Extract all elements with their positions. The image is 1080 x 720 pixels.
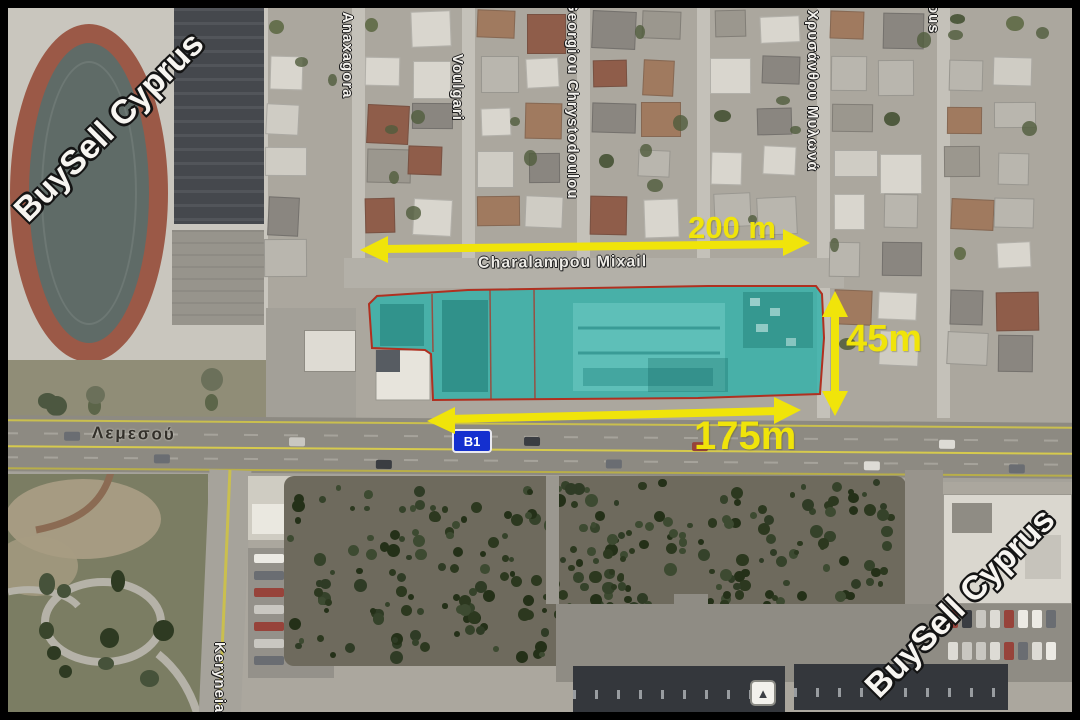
tree <box>614 500 619 505</box>
tree <box>415 500 425 510</box>
tree <box>790 126 801 135</box>
tree <box>295 643 301 649</box>
car <box>154 454 170 463</box>
tree <box>289 618 301 630</box>
road-line <box>8 445 1072 454</box>
tree <box>292 500 305 513</box>
tree <box>516 651 528 663</box>
side-road <box>905 470 943 604</box>
parking-car <box>254 588 284 597</box>
tree <box>461 516 468 523</box>
house <box>643 198 679 238</box>
tree <box>527 489 533 495</box>
car <box>376 460 392 469</box>
parking-car <box>254 622 284 631</box>
tree <box>502 555 509 562</box>
b1-road-sign: B1 <box>452 429 492 453</box>
house <box>834 194 865 230</box>
house <box>832 104 874 132</box>
house <box>762 56 801 86</box>
tree <box>864 504 876 516</box>
tree <box>664 563 677 576</box>
street-label-anaxagora: Anaxagora <box>339 12 356 99</box>
tree <box>776 96 790 106</box>
house <box>711 152 743 186</box>
tree <box>617 574 624 581</box>
tree <box>585 494 598 507</box>
tree <box>510 117 519 126</box>
tree <box>673 115 689 131</box>
public-park <box>8 474 208 712</box>
tree <box>603 549 613 559</box>
car <box>64 432 80 441</box>
house <box>591 11 636 51</box>
dimension-label-bottom: 175m <box>694 416 796 456</box>
tree <box>570 546 577 553</box>
tree <box>140 670 159 686</box>
tree <box>356 568 363 575</box>
house <box>481 107 512 136</box>
tree <box>849 506 858 515</box>
street-label-keryneias: Keryneias <box>211 642 228 712</box>
parking-car <box>254 656 284 665</box>
tree <box>524 150 537 165</box>
house <box>882 242 923 277</box>
tree <box>658 479 667 488</box>
car <box>606 459 622 468</box>
tree <box>408 594 414 600</box>
tree <box>595 511 605 521</box>
car <box>1009 464 1025 473</box>
tree <box>954 247 966 261</box>
tree <box>571 501 579 509</box>
tree <box>669 529 678 538</box>
tree <box>417 608 424 615</box>
house <box>715 10 747 38</box>
satellite-map: ▲ Anaxagora Voulgari Georgiou Chry <box>8 8 1072 712</box>
tree <box>469 588 477 596</box>
parking-car <box>254 639 284 648</box>
house <box>949 60 984 92</box>
house <box>762 145 797 175</box>
house <box>994 198 1035 230</box>
tree <box>568 565 574 571</box>
tree <box>438 563 446 571</box>
tree <box>390 651 403 664</box>
tree <box>430 505 436 511</box>
parking-car <box>1046 610 1056 628</box>
tree <box>336 485 342 491</box>
tree <box>818 538 829 549</box>
tree <box>639 540 648 549</box>
tree <box>579 524 587 532</box>
tree <box>839 556 850 567</box>
car <box>289 437 305 446</box>
house <box>944 146 981 177</box>
house <box>949 290 983 326</box>
tree <box>387 544 400 557</box>
tree <box>450 564 459 573</box>
house <box>998 335 1033 372</box>
tree <box>679 538 687 546</box>
tree <box>511 514 523 526</box>
house <box>524 196 563 230</box>
tree <box>618 532 625 539</box>
street-label-lemesou: Λεμεσού <box>92 423 176 445</box>
parking-car <box>990 610 1000 628</box>
tree <box>317 635 324 642</box>
house <box>877 291 917 321</box>
photo-frame: ▲ Anaxagora Voulgari Georgiou Chry <box>0 0 1080 720</box>
tree <box>881 526 893 538</box>
tree <box>645 522 654 531</box>
tree <box>399 536 405 542</box>
marker-triangle-icon: ▲ <box>757 686 770 701</box>
house <box>759 15 800 44</box>
tree <box>832 482 842 492</box>
tree <box>397 573 406 582</box>
tree <box>454 631 460 637</box>
house <box>477 150 515 187</box>
tree <box>86 386 105 404</box>
tree <box>599 154 613 168</box>
tree <box>414 486 425 497</box>
tree <box>709 569 714 574</box>
tree <box>319 496 326 503</box>
tree <box>366 549 377 560</box>
tree <box>471 502 482 513</box>
tree <box>406 206 421 219</box>
house <box>525 102 563 139</box>
tree <box>345 643 355 653</box>
tree <box>502 533 508 539</box>
tree <box>1006 16 1024 31</box>
map-marker-icon: ▲ <box>750 680 776 706</box>
tree <box>629 548 635 554</box>
tree <box>401 605 412 616</box>
parking-car <box>1046 642 1056 660</box>
tree <box>367 535 373 541</box>
tree <box>1036 27 1049 39</box>
tree <box>573 572 584 583</box>
house <box>878 60 914 96</box>
dimension-label-top: 200 m <box>688 212 776 243</box>
tree <box>638 482 646 490</box>
tree <box>823 564 830 571</box>
street-label-chrysanthou-mylona: Χρυσάνθου Μυλωνά <box>804 10 821 172</box>
house <box>996 291 1040 330</box>
tree <box>111 570 126 592</box>
tree <box>476 626 485 635</box>
car <box>939 440 955 449</box>
tree <box>488 537 499 548</box>
house <box>365 56 400 85</box>
house <box>641 10 681 40</box>
tree <box>758 505 767 514</box>
house <box>267 196 300 236</box>
tree <box>882 541 892 551</box>
tree <box>541 628 549 636</box>
tree <box>640 144 651 157</box>
tree <box>542 608 547 613</box>
tree <box>647 179 663 192</box>
house <box>264 239 307 277</box>
tree <box>47 646 61 659</box>
tree <box>295 517 302 524</box>
house <box>883 194 918 228</box>
tree <box>493 646 499 652</box>
tree <box>523 595 534 606</box>
house <box>590 196 628 235</box>
parking-car <box>1004 642 1014 660</box>
tree <box>687 523 692 528</box>
tree <box>500 572 509 581</box>
tree <box>862 492 867 497</box>
tree <box>330 570 335 575</box>
house <box>593 60 628 88</box>
tree <box>325 599 332 606</box>
parking-car <box>1018 642 1028 660</box>
tree <box>720 495 728 503</box>
house <box>830 10 865 39</box>
tree <box>364 506 370 512</box>
tree <box>794 550 799 555</box>
tree <box>591 522 597 528</box>
tree <box>350 506 355 511</box>
tree <box>389 171 399 184</box>
parking-car <box>1032 610 1042 628</box>
tree <box>324 608 329 613</box>
tree <box>624 596 632 604</box>
tree <box>560 557 566 563</box>
tree <box>420 642 430 652</box>
tree <box>480 551 486 557</box>
tree <box>57 584 71 598</box>
tree <box>734 499 741 506</box>
dimension-label-depth: 45m <box>846 320 922 358</box>
tree <box>776 556 787 567</box>
tree <box>205 394 219 411</box>
tree <box>589 571 602 584</box>
house <box>413 61 451 99</box>
tree <box>98 657 114 670</box>
tree <box>750 512 757 519</box>
tree <box>802 499 814 511</box>
tree <box>797 591 807 601</box>
house <box>996 241 1031 269</box>
tree <box>587 547 596 556</box>
tree <box>465 625 475 635</box>
tree <box>480 564 490 574</box>
tree <box>531 575 542 586</box>
tree <box>714 110 731 122</box>
house <box>998 153 1029 186</box>
tree <box>328 74 337 86</box>
house <box>265 147 307 176</box>
tree <box>452 521 460 529</box>
tree <box>790 492 795 497</box>
house <box>946 331 989 366</box>
tree <box>373 613 385 625</box>
tree <box>413 535 425 547</box>
tree <box>442 603 447 608</box>
parking-car <box>962 642 972 660</box>
tree <box>797 541 802 546</box>
tree <box>830 238 839 252</box>
b1-road-sign-label: B1 <box>464 434 481 449</box>
tree <box>679 548 685 554</box>
car <box>864 461 880 470</box>
tree <box>698 549 710 561</box>
tree <box>453 547 463 557</box>
tree <box>810 525 823 538</box>
tree <box>365 18 378 31</box>
tree <box>399 506 406 513</box>
tree <box>364 490 373 499</box>
tree <box>759 558 764 563</box>
parking-car <box>990 642 1000 660</box>
house <box>947 107 982 135</box>
street-label-charalampou-mixail: Charalampou Mixail <box>478 253 647 272</box>
tree <box>539 652 545 658</box>
tree <box>330 652 336 658</box>
tree <box>39 622 53 639</box>
tree <box>348 545 359 556</box>
tree <box>38 393 56 408</box>
house <box>410 10 451 47</box>
house <box>880 154 922 194</box>
street-label-voulgari: Voulgari <box>449 54 466 121</box>
tree <box>389 569 396 576</box>
house <box>643 60 676 98</box>
parking-car <box>254 605 284 614</box>
tree <box>873 479 880 486</box>
tree <box>415 549 426 560</box>
forest-path <box>546 476 559 604</box>
tree <box>607 534 618 545</box>
parking-car <box>1018 610 1028 628</box>
tree <box>576 559 584 567</box>
tree <box>948 30 963 41</box>
tree <box>698 539 704 545</box>
tree <box>201 368 223 391</box>
tree <box>770 549 777 556</box>
parking-car <box>254 571 284 580</box>
tree <box>801 484 806 489</box>
house <box>481 55 519 92</box>
tree <box>509 557 514 562</box>
tree <box>724 519 734 529</box>
tree <box>510 571 516 577</box>
tree <box>825 507 836 518</box>
street-label-georgiou-chrystodoulou: Georgiou Chrystodoulou <box>564 8 581 200</box>
tree <box>950 14 966 24</box>
tree <box>446 532 454 540</box>
tree <box>39 573 56 595</box>
tree <box>295 57 308 67</box>
tree <box>412 639 419 646</box>
parking-car <box>254 554 284 563</box>
tree <box>611 584 617 590</box>
tree <box>314 588 323 597</box>
house <box>525 57 559 88</box>
tree <box>620 556 626 562</box>
tree <box>558 590 568 600</box>
tree <box>354 579 367 592</box>
tree <box>483 590 495 602</box>
house <box>477 196 520 226</box>
parking-car <box>1032 642 1042 660</box>
tree <box>917 32 931 47</box>
tree <box>766 534 776 544</box>
tree <box>851 579 861 589</box>
tree <box>828 496 839 507</box>
tree <box>739 580 750 591</box>
tree <box>100 628 119 648</box>
tree <box>708 518 718 528</box>
house <box>950 198 995 231</box>
tree <box>731 487 743 499</box>
tree <box>626 530 632 536</box>
tree <box>764 515 774 525</box>
house <box>834 150 878 177</box>
tree <box>269 20 285 34</box>
tree <box>866 578 874 586</box>
tree <box>666 543 677 554</box>
house <box>266 103 300 136</box>
tree <box>593 558 599 564</box>
tree <box>429 511 440 522</box>
tree <box>878 581 883 586</box>
tree <box>518 608 531 621</box>
tree <box>884 112 900 126</box>
tree <box>411 110 425 124</box>
tree <box>314 553 326 565</box>
tree <box>735 590 745 600</box>
house <box>364 197 395 232</box>
tree <box>1022 121 1037 136</box>
tree <box>396 586 407 597</box>
tree <box>736 554 748 566</box>
tree <box>385 602 390 607</box>
tree <box>783 580 789 586</box>
tree <box>580 583 588 591</box>
house <box>830 56 866 92</box>
house <box>408 146 443 176</box>
tree <box>618 582 626 590</box>
house <box>757 107 792 135</box>
tree <box>877 509 889 521</box>
tree <box>392 637 398 643</box>
parking-car <box>976 642 986 660</box>
tree <box>525 512 532 519</box>
tree <box>511 576 522 587</box>
park-paths <box>8 474 208 712</box>
tree <box>835 591 846 602</box>
tree <box>287 535 294 542</box>
house <box>592 103 636 134</box>
tree <box>880 567 887 574</box>
house <box>710 58 751 94</box>
tree <box>716 584 721 589</box>
street-label-partial: ous <box>925 8 942 34</box>
tree <box>635 521 643 529</box>
house <box>477 9 516 39</box>
car <box>524 437 540 446</box>
house <box>527 14 566 54</box>
tree <box>406 555 411 560</box>
tree <box>663 517 673 527</box>
